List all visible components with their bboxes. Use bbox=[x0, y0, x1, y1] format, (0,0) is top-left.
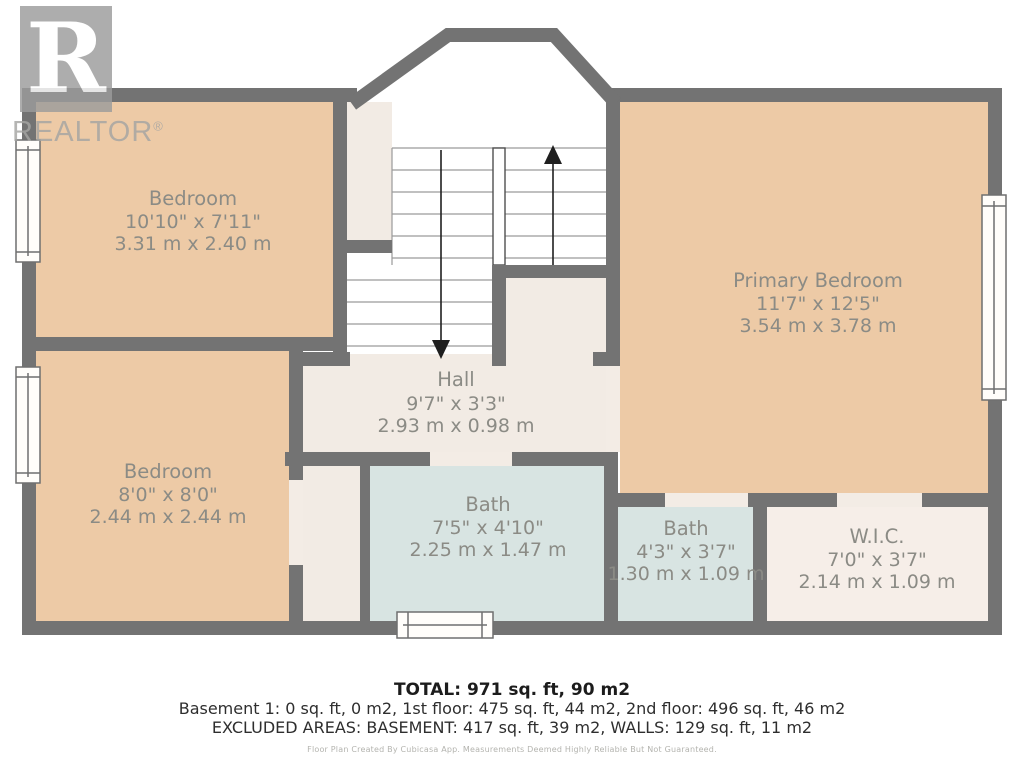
wall-primary-bottom-c bbox=[922, 493, 988, 507]
excluded-areas-text: EXCLUDED AREAS: BASEMENT: 417 sq. ft, 39… bbox=[0, 719, 1024, 738]
room-dim-imperial: 11'7" x 12'5" bbox=[756, 293, 880, 315]
room-dim-metric: 3.31 m x 2.40 m bbox=[114, 233, 271, 255]
realtor-brand-word: REALTOR bbox=[12, 116, 153, 148]
wall-stair-hall bbox=[492, 265, 506, 366]
threshold-stairs-hall bbox=[347, 354, 492, 366]
wall-primary-bottom-b bbox=[748, 493, 837, 507]
stair-center-rail bbox=[493, 148, 505, 265]
realtor-brand-text: REALTOR® bbox=[12, 116, 164, 149]
stairs-lower-area bbox=[347, 253, 492, 354]
disclaimer-text: Floor Plan Created By Cubicasa App. Meas… bbox=[0, 745, 1024, 754]
wall-stub-hall-nw bbox=[295, 352, 350, 366]
wall-under-stairs bbox=[492, 265, 618, 278]
label-primary-bedroom: Primary Bedroom 11'7" x 12'5" 3.54 m x 3… bbox=[733, 269, 903, 337]
floorplan-page: { "watermark": { "logo_letter": "R", "br… bbox=[0, 0, 1024, 768]
window-bedroom-top-left bbox=[16, 140, 40, 262]
door-opening-bath-main bbox=[430, 452, 512, 466]
door-opening-primary-bedroom bbox=[606, 366, 620, 452]
room-dim-imperial: 7'0" x 3'7" bbox=[827, 549, 927, 571]
window-primary-bedroom bbox=[982, 195, 1006, 400]
room-dim-metric: 3.54 m x 3.78 m bbox=[739, 315, 896, 337]
room-name: Bath bbox=[663, 517, 708, 540]
room-dim-metric: 1.30 m x 1.09 m bbox=[607, 563, 764, 585]
room-dim-imperial: 9'7" x 3'3" bbox=[406, 393, 506, 415]
wall-bedroom-bl-right-lower bbox=[289, 565, 303, 621]
room-dim-imperial: 7'5" x 4'10" bbox=[432, 517, 544, 539]
room-dim-metric: 2.44 m x 2.44 m bbox=[89, 506, 246, 528]
room-dim-metric: 2.93 m x 0.98 m bbox=[377, 415, 534, 437]
closet-corridor-area bbox=[303, 466, 360, 621]
wall-hall-bottom-right bbox=[512, 452, 618, 466]
realtor-logo-letter: R bbox=[26, 11, 106, 107]
window-bedroom-bottom-left bbox=[16, 367, 40, 483]
wall-primary-bottom-a bbox=[618, 493, 665, 507]
room-name: Bedroom bbox=[149, 187, 237, 210]
floor-areas-text: Basement 1: 0 sq. ft, 0 m2, 1st floor: 4… bbox=[0, 700, 1024, 719]
room-name: Hall bbox=[437, 368, 474, 391]
stair-landing-area bbox=[347, 102, 392, 240]
door-opening-bath-small bbox=[665, 493, 748, 507]
wall-bedroom-tl-right bbox=[333, 102, 347, 366]
wall-stub-primary-door bbox=[593, 352, 620, 366]
total-area-text: TOTAL: 971 sq. ft, 90 m2 bbox=[0, 681, 1024, 700]
room-name: Bath bbox=[465, 493, 510, 516]
wall-landing-stub bbox=[347, 240, 392, 253]
room-dim-metric: 2.25 m x 1.47 m bbox=[409, 539, 566, 561]
wall-hall-bottom-left bbox=[285, 452, 430, 466]
wall-top-right bbox=[608, 88, 1002, 102]
area-summary: TOTAL: 971 sq. ft, 90 m2 Basement 1: 0 s… bbox=[0, 681, 1024, 754]
room-dim-imperial: 10'10" x 7'11" bbox=[125, 211, 261, 233]
room-area-hall-extension bbox=[506, 278, 606, 366]
registered-mark: ® bbox=[153, 118, 164, 133]
door-opening-wic bbox=[837, 493, 922, 507]
room-name: Primary Bedroom bbox=[733, 269, 903, 292]
door-opening-bedroom-bottom-left bbox=[289, 480, 303, 565]
room-dim-metric: 2.14 m x 1.09 m bbox=[798, 571, 955, 593]
wall-bottom bbox=[22, 621, 1002, 635]
realtor-watermark: R REALTOR® bbox=[20, 6, 164, 149]
wall-bath-divider bbox=[604, 452, 618, 621]
wall-bath-left bbox=[360, 466, 370, 621]
room-name: Bedroom bbox=[124, 460, 212, 483]
room-dim-imperial: 8'0" x 8'0" bbox=[118, 484, 218, 506]
realtor-logo-icon: R bbox=[20, 6, 112, 112]
room-name: W.I.C. bbox=[849, 525, 904, 548]
room-dim-imperial: 4'3" x 3'7" bbox=[636, 541, 736, 563]
wall-primary-left bbox=[606, 102, 620, 366]
window-bath-main bbox=[397, 612, 493, 638]
